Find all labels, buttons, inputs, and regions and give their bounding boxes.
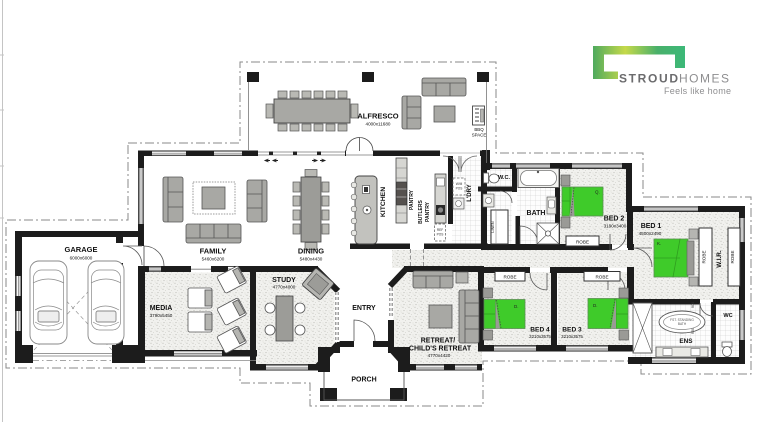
svg-text:5460x6200: 5460x6200 (202, 257, 225, 262)
svg-text:WC: WC (723, 313, 732, 319)
svg-text:BED 4: BED 4 (530, 327, 550, 334)
svg-text:3210x3575: 3210x3575 (529, 334, 551, 339)
svg-text:BBQ: BBQ (474, 127, 484, 132)
svg-text:MEDIA: MEDIA (150, 305, 173, 312)
svg-text:GARAGE: GARAGE (65, 245, 98, 254)
svg-text:KITCHEN: KITCHEN (380, 187, 387, 217)
svg-text:RETREAT/: RETREAT/ (421, 338, 456, 345)
svg-text:BED 1: BED 1 (641, 223, 662, 230)
svg-text:LINEN: LINEN (491, 221, 495, 232)
svg-text:L'DRY: L'DRY (467, 184, 473, 202)
svg-text:ROBE: ROBE (702, 250, 707, 263)
svg-text:Feels like home: Feels like home (664, 86, 731, 96)
svg-text:6000x6000: 6000x6000 (70, 256, 93, 261)
svg-text:BED 3: BED 3 (562, 327, 582, 334)
svg-text:W/M: W/M (456, 182, 463, 186)
svg-text:4000x11680: 4000x11680 (366, 122, 391, 127)
svg-text:ENTRY: ENTRY (352, 305, 376, 312)
svg-text:ROBE: ROBE (730, 250, 735, 263)
svg-text:REF: REF (437, 228, 443, 232)
svg-text:SPACE: SPACE (472, 133, 487, 138)
svg-text:K.: K. (657, 241, 661, 246)
svg-text:PANTRY: PANTRY (409, 189, 415, 210)
svg-text:4770x4420: 4770x4420 (428, 353, 451, 358)
svg-text:ROBE: ROBE (576, 240, 589, 245)
svg-text:W.C.: W.C. (498, 175, 511, 181)
svg-text:900: 900 (691, 328, 695, 334)
svg-text:Q.: Q. (595, 190, 600, 195)
svg-text:STUDY: STUDY (272, 277, 296, 284)
svg-text:ROBE: ROBE (503, 275, 516, 280)
svg-text:POS: POS (456, 187, 463, 191)
svg-text:W.I.R.: W.I.R. (716, 250, 723, 268)
svg-text:BATH: BATH (527, 210, 546, 217)
svg-text:3210x3575: 3210x3575 (561, 334, 583, 339)
svg-text:3190x3400: 3190x3400 (604, 224, 627, 229)
svg-text:DINING: DINING (298, 247, 324, 256)
svg-text:POS: POS (437, 233, 444, 237)
svg-text:4500x2490: 4500x2490 (639, 231, 662, 236)
svg-text:STROUD: STROUD (619, 72, 678, 86)
svg-text:FAMILY: FAMILY (200, 247, 227, 256)
svg-text:BATH: BATH (678, 322, 687, 326)
svg-text:900: 900 (691, 302, 695, 308)
svg-text:D.: D. (593, 303, 598, 308)
svg-text:BED 2: BED 2 (604, 216, 625, 223)
svg-text:ALFRESCO: ALFRESCO (357, 112, 398, 121)
svg-text:PANTRY: PANTRY (425, 201, 431, 222)
svg-text:BUTLERS: BUTLERS (418, 200, 424, 224)
svg-text:3790x5450: 3790x5450 (150, 313, 173, 318)
svg-text:5480x4430: 5480x4430 (300, 257, 323, 262)
svg-text:D.: D. (514, 304, 519, 309)
svg-text:CHILD'S RETREAT: CHILD'S RETREAT (409, 346, 472, 353)
svg-text:4770x4000: 4770x4000 (273, 285, 296, 290)
svg-text:ENS: ENS (679, 338, 693, 345)
svg-text:PORCH: PORCH (351, 377, 376, 384)
svg-text:ROBE: ROBE (595, 275, 608, 280)
svg-text:HOMES: HOMES (679, 72, 729, 86)
